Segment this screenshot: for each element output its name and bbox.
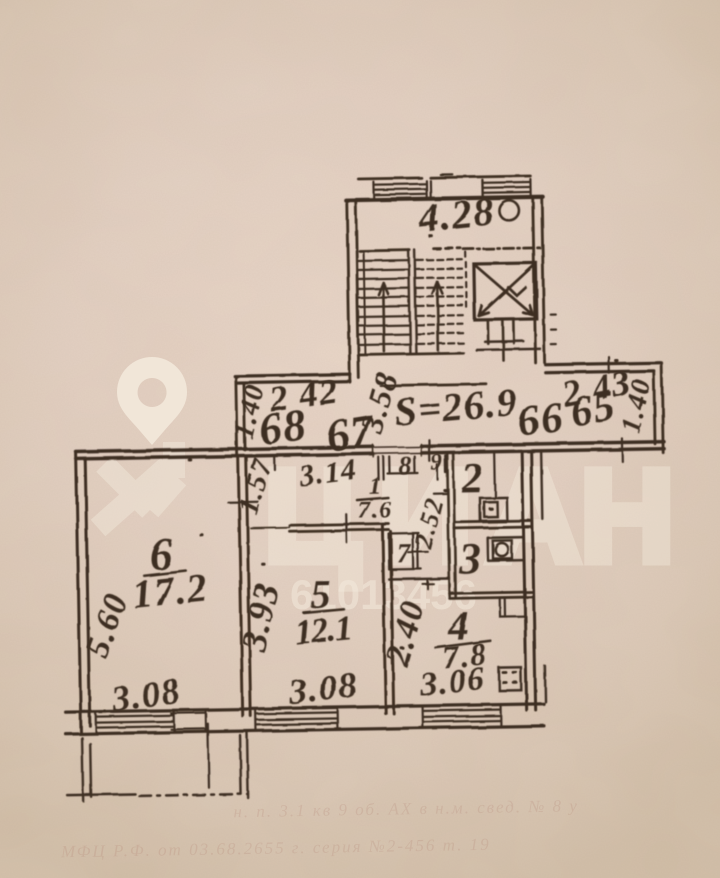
svg-text:Н: Н bbox=[580, 442, 675, 589]
svg-text:66: 66 bbox=[515, 394, 566, 446]
svg-text:3.06: 3.06 bbox=[417, 660, 487, 704]
svg-text:2: 2 bbox=[460, 456, 484, 502]
svg-text:7.6: 7.6 bbox=[358, 497, 393, 524]
svg-text:68: 68 bbox=[256, 399, 310, 454]
svg-text:9: 9 bbox=[430, 450, 444, 476]
svg-text:3: 3 bbox=[458, 534, 483, 583]
svg-text:4.28: 4.28 bbox=[416, 188, 497, 241]
svg-text:1: 1 bbox=[368, 473, 382, 500]
svg-text:7: 7 bbox=[397, 538, 413, 568]
svg-text:8: 8 bbox=[398, 451, 413, 480]
svg-text:12.1: 12.1 bbox=[293, 608, 353, 652]
svg-text:17.2: 17.2 bbox=[130, 564, 210, 617]
svg-text:65: 65 bbox=[567, 383, 620, 437]
svg-text:3.08: 3.08 bbox=[286, 664, 360, 712]
